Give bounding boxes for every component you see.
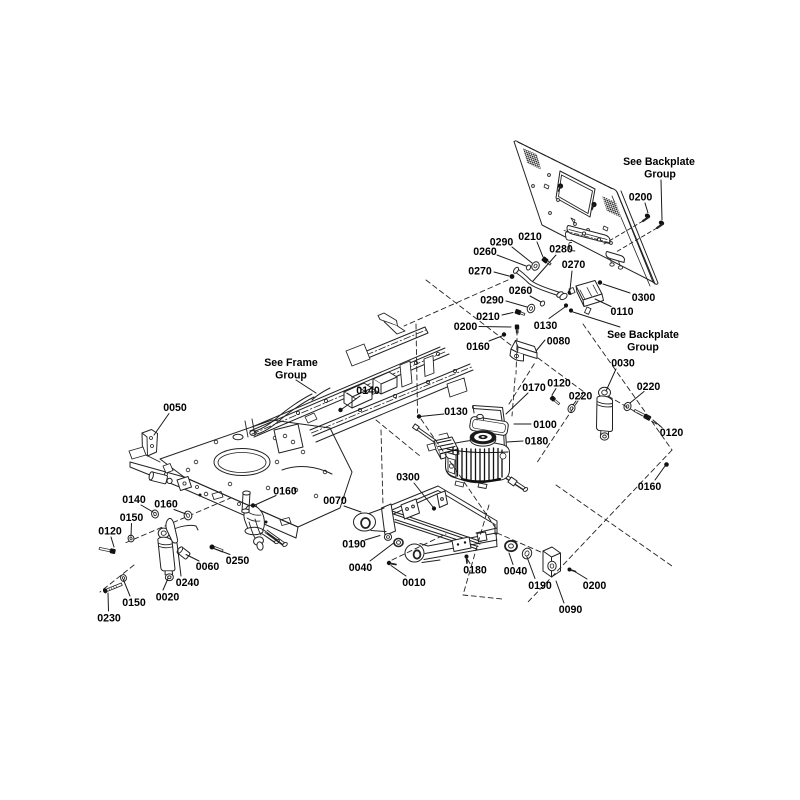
- svg-text:0120: 0120: [98, 526, 122, 538]
- svg-text:0150: 0150: [120, 512, 144, 524]
- svg-text:0200: 0200: [583, 580, 607, 592]
- svg-text:0070: 0070: [323, 495, 347, 507]
- svg-text:0240: 0240: [176, 577, 200, 589]
- svg-text:0210: 0210: [476, 311, 500, 323]
- svg-text:See Backplate: See Backplate: [623, 156, 695, 168]
- svg-text:Group: Group: [644, 169, 676, 181]
- svg-text:Group: Group: [275, 370, 307, 382]
- svg-text:0140: 0140: [122, 494, 146, 506]
- svg-text:0010: 0010: [402, 577, 426, 589]
- svg-text:0180: 0180: [463, 565, 487, 577]
- svg-text:0270: 0270: [468, 266, 492, 278]
- svg-text:0050: 0050: [163, 402, 187, 414]
- svg-text:0150: 0150: [122, 597, 146, 609]
- svg-text:0160: 0160: [154, 499, 178, 511]
- svg-text:0190: 0190: [528, 580, 552, 592]
- svg-text:0080: 0080: [547, 336, 571, 348]
- svg-text:0220: 0220: [569, 391, 593, 403]
- svg-text:0250: 0250: [226, 555, 250, 567]
- svg-text:0130: 0130: [444, 406, 468, 418]
- svg-text:0280: 0280: [549, 244, 573, 256]
- svg-text:0040: 0040: [349, 562, 373, 574]
- svg-text:0160: 0160: [638, 481, 662, 493]
- svg-text:0300: 0300: [396, 472, 420, 484]
- svg-text:0120: 0120: [660, 427, 684, 439]
- svg-text:0100: 0100: [533, 419, 557, 431]
- svg-text:0210: 0210: [518, 231, 542, 243]
- svg-text:Group: Group: [627, 342, 659, 354]
- svg-text:0160: 0160: [273, 486, 297, 498]
- svg-text:0040: 0040: [504, 566, 528, 578]
- svg-text:0190: 0190: [342, 539, 366, 551]
- svg-text:0090: 0090: [559, 604, 583, 616]
- svg-text:See Backplate: See Backplate: [607, 329, 679, 341]
- svg-text:0030: 0030: [611, 358, 635, 370]
- svg-text:See Frame: See Frame: [264, 357, 318, 369]
- svg-text:0200: 0200: [454, 321, 478, 333]
- svg-text:0230: 0230: [97, 613, 121, 625]
- svg-text:0110: 0110: [611, 306, 634, 318]
- svg-text:0120: 0120: [547, 378, 571, 390]
- svg-text:0300: 0300: [632, 292, 656, 304]
- svg-text:0060: 0060: [196, 561, 220, 573]
- svg-text:0020: 0020: [156, 592, 180, 604]
- svg-text:0220: 0220: [637, 381, 661, 393]
- svg-text:0170: 0170: [522, 382, 546, 394]
- svg-text:0290: 0290: [480, 295, 504, 307]
- svg-text:0200: 0200: [629, 192, 653, 204]
- svg-text:0180: 0180: [525, 436, 549, 448]
- svg-text:0130: 0130: [534, 320, 558, 332]
- svg-text:0260: 0260: [473, 246, 497, 258]
- svg-text:0160: 0160: [466, 341, 490, 353]
- svg-text:0260: 0260: [509, 285, 533, 297]
- svg-text:0270: 0270: [562, 259, 586, 271]
- svg-text:0140: 0140: [356, 385, 380, 397]
